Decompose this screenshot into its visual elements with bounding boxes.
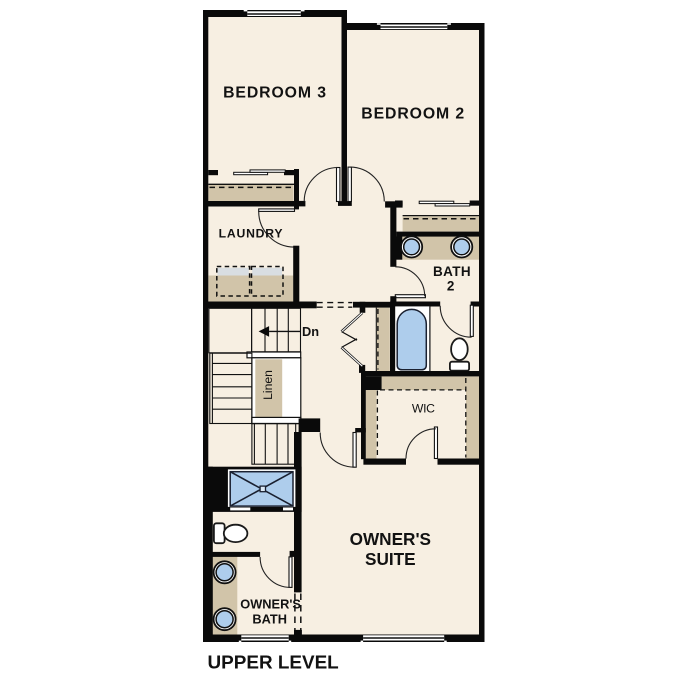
svg-text:OWNER'S: OWNER'S bbox=[240, 596, 301, 611]
svg-text:UPPER LEVEL: UPPER LEVEL bbox=[208, 652, 339, 673]
svg-text:OWNER'S: OWNER'S bbox=[350, 529, 431, 549]
svg-text:Dn: Dn bbox=[302, 324, 319, 339]
svg-text:BATH: BATH bbox=[433, 264, 471, 279]
svg-text:BATH: BATH bbox=[252, 611, 287, 626]
svg-text:BEDROOM 2: BEDROOM 2 bbox=[361, 106, 465, 123]
svg-text:2: 2 bbox=[447, 278, 455, 293]
svg-text:LAUNDRY: LAUNDRY bbox=[219, 227, 284, 241]
svg-text:BEDROOM 3: BEDROOM 3 bbox=[223, 84, 327, 101]
svg-text:WIC: WIC bbox=[412, 402, 435, 416]
svg-text:SUITE: SUITE bbox=[365, 549, 416, 569]
svg-text:Linen: Linen bbox=[261, 370, 275, 400]
